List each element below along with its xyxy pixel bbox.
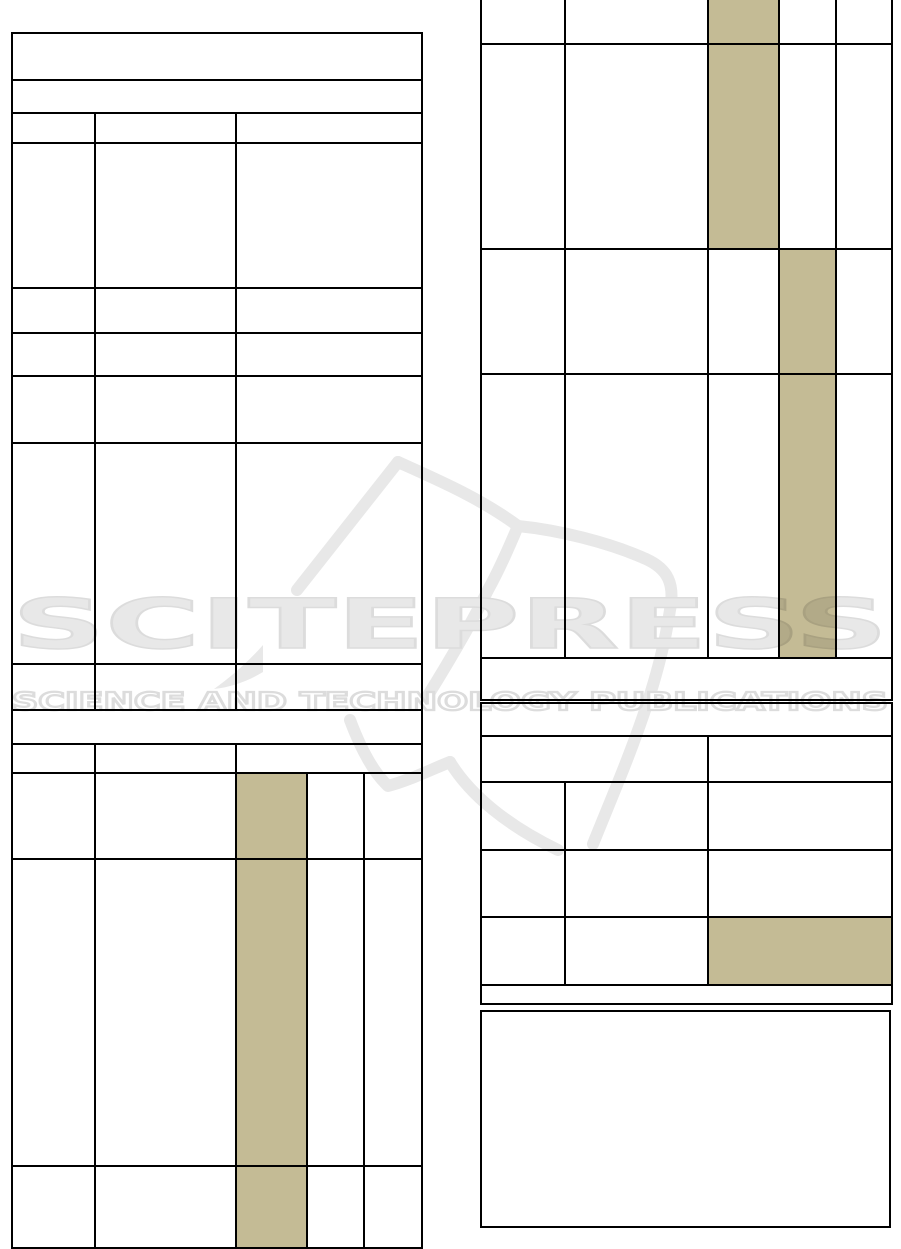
table-cell (481, 374, 565, 658)
table-row (481, 0, 892, 44)
table-cell (481, 985, 892, 1004)
table-cell (95, 333, 236, 376)
table-cell (364, 1166, 422, 1248)
table-cell (307, 1166, 364, 1248)
table-cell (836, 374, 892, 658)
right-middle-table (480, 702, 893, 1005)
table-cell (708, 736, 892, 782)
table-cell (565, 850, 708, 917)
table-cell (481, 703, 892, 736)
table-cell (481, 736, 708, 782)
table-cell (236, 376, 422, 443)
table-row (481, 736, 892, 782)
table-cell (565, 0, 708, 44)
table-cell (481, 658, 892, 700)
table-cell (779, 44, 836, 249)
table-cell (481, 850, 565, 917)
table-cell (12, 664, 95, 710)
table-row (481, 917, 892, 985)
table-cell (95, 744, 236, 773)
left-column-table (11, 32, 423, 1249)
table-cell (481, 917, 565, 985)
table-cell (12, 288, 95, 333)
table-cell (12, 333, 95, 376)
table-row (481, 850, 892, 917)
table-row (481, 985, 892, 1004)
table-cell (565, 917, 708, 985)
table-row (481, 703, 892, 736)
table-cell (236, 443, 422, 664)
highlighted-table-cell (236, 1166, 307, 1248)
table-cell (708, 249, 779, 374)
table-row (481, 374, 892, 658)
table-cell (12, 710, 422, 744)
table-cell (95, 664, 236, 710)
table-cell (236, 143, 422, 288)
table-row (12, 859, 422, 1166)
table-cell (565, 782, 708, 850)
table-cell (95, 859, 236, 1166)
table-cell (12, 33, 422, 80)
table-row (12, 376, 422, 443)
right-top-table (480, 0, 893, 701)
table-row (12, 80, 422, 113)
table-cell (95, 443, 236, 664)
table-row (12, 33, 422, 80)
table-row (481, 249, 892, 374)
table-cell (12, 1166, 95, 1248)
scanned-paper-page: SCITEPRESS SCIENCE AND TECHNOLOGY PUBLIC… (0, 0, 901, 1249)
table-cell (12, 859, 95, 1166)
highlighted-table-cell (779, 374, 836, 658)
table-cell (12, 376, 95, 443)
table-cell (95, 376, 236, 443)
figure-placeholder-box (480, 1010, 891, 1228)
table-cell (307, 773, 364, 859)
table-cell (364, 859, 422, 1166)
table-cell (95, 288, 236, 333)
table-row (12, 143, 422, 288)
table-cell (565, 44, 708, 249)
table-row (481, 44, 892, 249)
table-cell (12, 443, 95, 664)
table-row (12, 710, 422, 744)
table-cell (836, 0, 892, 44)
table-row (12, 333, 422, 376)
table-row (12, 744, 422, 773)
table-cell (12, 143, 95, 288)
highlighted-table-cell (708, 0, 779, 44)
table-cell (307, 859, 364, 1166)
table-cell (481, 0, 565, 44)
table-row (12, 1166, 422, 1248)
table-row (481, 658, 892, 700)
table-cell (708, 374, 779, 658)
table-cell (12, 744, 95, 773)
table-cell (236, 333, 422, 376)
table-row (12, 664, 422, 710)
table-cell (708, 850, 892, 917)
table-row (12, 443, 422, 664)
table-cell (565, 249, 708, 374)
table-row (12, 113, 422, 143)
table-cell (236, 744, 422, 773)
table-row (12, 773, 422, 859)
highlighted-table-cell (708, 44, 779, 249)
table-cell (236, 664, 422, 710)
highlighted-table-cell (236, 859, 307, 1166)
table-cell (779, 0, 836, 44)
table-cell (836, 44, 892, 249)
table-cell (565, 374, 708, 658)
table-cell (236, 113, 422, 143)
table-cell (236, 288, 422, 333)
highlighted-table-cell (779, 249, 836, 374)
table-cell (364, 773, 422, 859)
table-cell (12, 773, 95, 859)
table-cell (95, 773, 236, 859)
table-cell (481, 782, 565, 850)
highlighted-table-cell (708, 917, 892, 985)
table-cell (12, 80, 422, 113)
table-cell (95, 1166, 236, 1248)
table-row (12, 288, 422, 333)
table-cell (95, 143, 236, 288)
table-cell (708, 782, 892, 850)
table-cell (481, 249, 565, 374)
table-cell (12, 113, 95, 143)
table-cell (481, 44, 565, 249)
highlighted-table-cell (236, 773, 307, 859)
table-row (481, 782, 892, 850)
table-cell (836, 249, 892, 374)
table-cell (95, 113, 236, 143)
